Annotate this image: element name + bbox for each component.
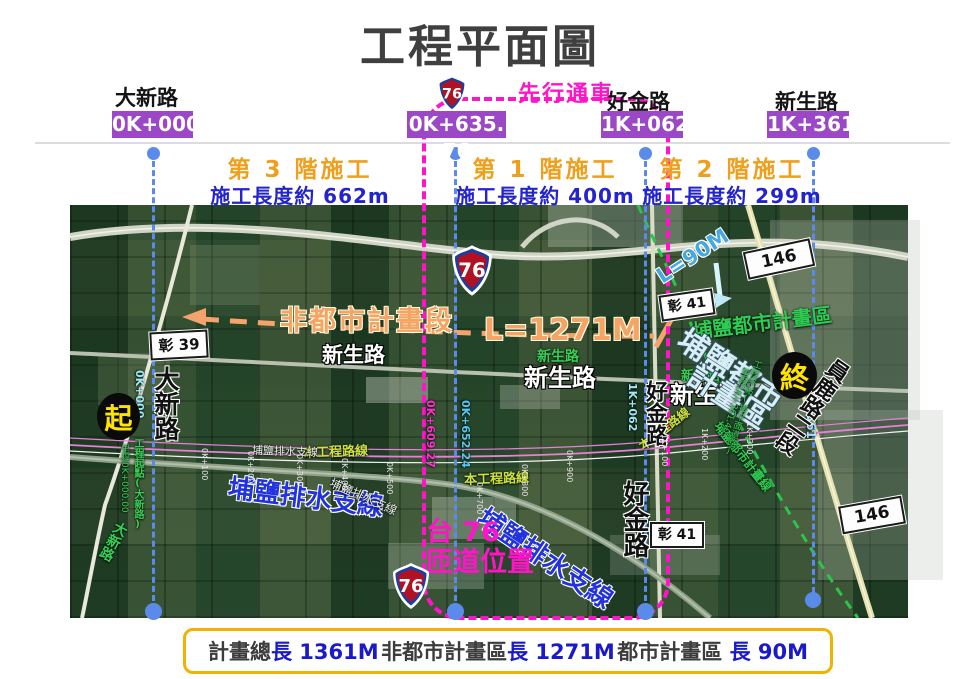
chainage-tick: 1K+300 [745, 422, 754, 454]
drainage-small-label: 埔鹽排水支線 [252, 442, 319, 460]
page-title: 工程平面圖 [0, 10, 960, 75]
road-name-daxin: 大新路 [115, 82, 178, 112]
start-note: 工程起點(大新路) [130, 438, 145, 530]
summary-non-urban-label: 非都市計畫區 [381, 640, 507, 664]
phase-3-length: 施工長度約 662m [180, 180, 420, 209]
ramp-location-label: 台 76 匝道位置 [426, 518, 534, 578]
station-box-0k000: 0K+000 [112, 111, 193, 138]
summary-total-label: 計畫總 [208, 640, 271, 664]
station-text-0k609: 0K+609.27 [424, 400, 437, 468]
chainage-tick: 0K+700 [475, 482, 484, 514]
chainage-tick: 0K+900 [565, 450, 574, 482]
haojin-road-label: 好金路 [616, 480, 653, 558]
route-76-shield: 76 [391, 562, 431, 610]
summary-urban-value: 長 90M [730, 640, 808, 664]
station-box-1k361: 1K+361 [767, 111, 849, 138]
svg-text:76: 76 [398, 576, 423, 597]
summary-non-urban-value: 長 1271M [507, 640, 615, 664]
cyan-arrowhead [714, 293, 732, 308]
chainage-tick: 1K+100 [660, 434, 669, 466]
summary-bar: 計畫總長 1361M 非都市計畫區長 1271M 都市計畫區 長 90M [183, 628, 833, 674]
guide-dot [147, 147, 160, 160]
start-marker: 起 [97, 393, 140, 440]
non-urban-segment-label: 非都市計畫段 [280, 299, 454, 338]
xinsheng-road-label: 新生路 [322, 339, 385, 369]
chainage-tick: 0K+500 [385, 462, 394, 494]
pre-opening-label: 先行通車 [518, 76, 614, 108]
chainage-tick: 0K+200 [246, 451, 255, 483]
non-urban-arrowhead [182, 308, 206, 326]
svg-text:76: 76 [458, 259, 486, 282]
station-box-1k062: 1K+062 [601, 111, 683, 138]
ramp-location-line2: 匝道位置 [426, 548, 534, 578]
summary-urban-label: 都市計畫區 [617, 640, 729, 664]
length-1271m-label: L=1271M [484, 313, 642, 348]
phase-2-label: 第 2 階施工 [612, 150, 852, 184]
guide-dot [145, 603, 162, 620]
guide-dot [805, 592, 821, 608]
station-text-1k062: 1K+062 [626, 383, 639, 431]
chainage-tick: 0K+100 [200, 448, 209, 480]
summary-total-value: 長 1361M [271, 640, 379, 664]
chainage-tick: 0K+800 [520, 464, 529, 496]
chainage-tick: 0K+300 [295, 454, 304, 486]
guide-dot [637, 603, 654, 620]
summary-non-urban: 非都市計畫區長 1271M [381, 636, 615, 666]
guide-dot [447, 603, 464, 620]
end-marker: 終 [772, 352, 817, 399]
daxin-road-label: 大新路 [147, 366, 183, 441]
summary-total: 計畫總長 1361M [208, 636, 379, 666]
route-76-shield: 76 [450, 244, 494, 297]
start-note-mileage: 里程0K+000.00 [118, 444, 131, 513]
chainage-tick: 0K+400 [340, 458, 349, 490]
route-76-shield: 76 [436, 74, 468, 113]
chainage-tick: 1K+200 [700, 428, 709, 460]
construction-plan-page: 工程平面圖 [0, 0, 960, 679]
summary-urban: 都市計畫區 長 90M [617, 636, 808, 666]
station-box-0k635: 0K+635. 76 [407, 111, 506, 138]
xinsheng-road-label: 新生路 [524, 358, 596, 393]
road-sign-chang39: 彰 39 [149, 330, 208, 361]
station-text-0k652: 0K+652.24 [459, 400, 472, 468]
svg-text:76: 76 [442, 86, 462, 102]
road-sign-chang41: 彰 41 [650, 522, 704, 548]
phase-3-label: 第 3 階施工 [180, 150, 420, 184]
ramp-location-line1: 台 76 [426, 518, 534, 548]
phase-2-length: 施工長度約 299m [612, 180, 852, 209]
